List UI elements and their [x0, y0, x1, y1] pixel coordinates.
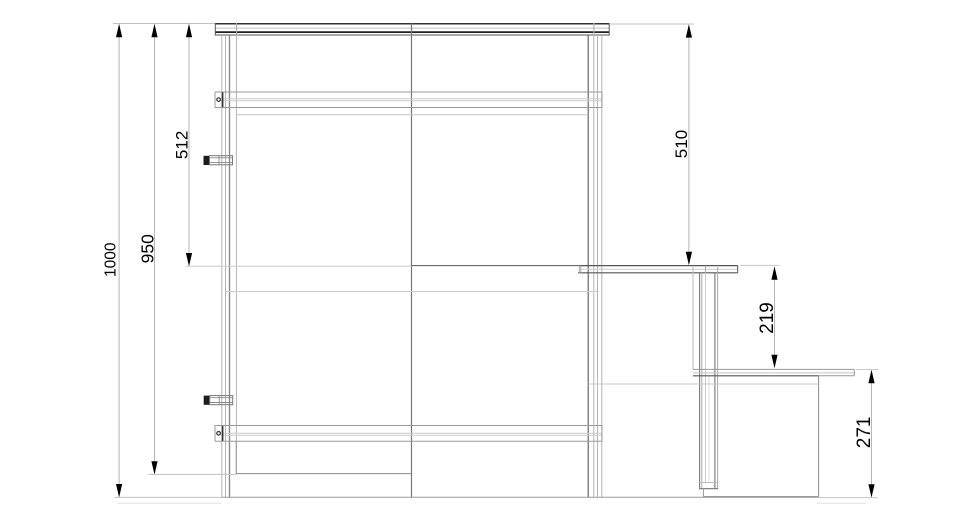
svg-text:512: 512 [172, 131, 191, 159]
svg-text:1000: 1000 [103, 242, 120, 277]
svg-text:271: 271 [854, 417, 875, 449]
svg-text:510: 510 [672, 130, 691, 158]
svg-text:219: 219 [757, 302, 778, 334]
svg-text:950: 950 [137, 234, 157, 263]
